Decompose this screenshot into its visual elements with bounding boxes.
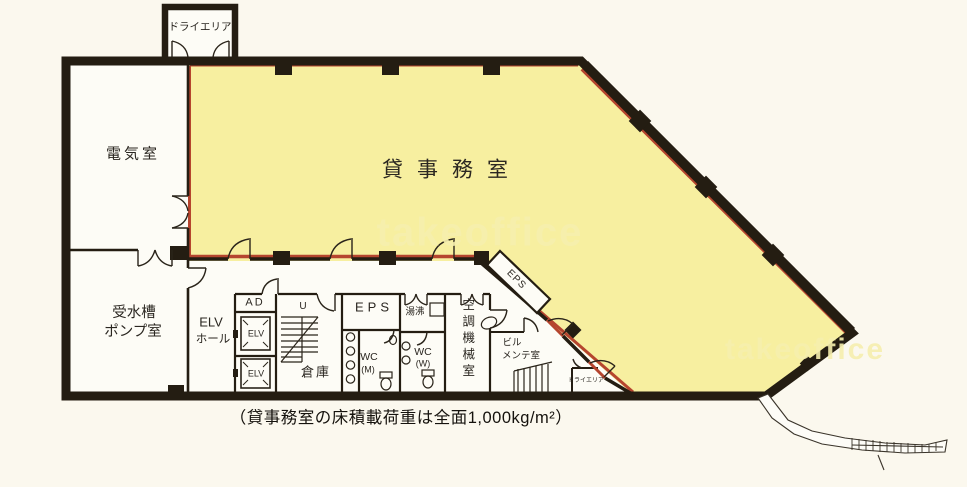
label-hvac-room: 空調機械室 [461,298,474,381]
label-tank-pump-line1: 受水槽 [112,306,156,321]
label-elevator-1: ELV [248,330,264,339]
label-dry-area-top: ドライエリア [169,22,232,33]
watermark-text: takeoffice [377,211,584,256]
label-elv-hall-line1: ELV [199,316,223,329]
label-elevator-2: ELV [248,370,264,379]
label-electrical-room: 電気室 [106,147,160,162]
dry-area-top-box [165,7,235,65]
watermark-text-2: takeoffice [725,333,885,367]
label-wc-w-line2: (W) [416,360,431,369]
label-maintenance-line2: メンテ室 [502,351,540,361]
floor-plan: takeoffice takeoffice ドライエリア 電気室 貸事務室 受水… [0,0,967,487]
label-eps: EPS [355,301,393,314]
label-elv-hall-line2: ホール [196,334,231,346]
label-stair-up: U [299,302,306,312]
label-maintenance-line1: ビル [502,338,521,348]
label-wc-m-line1: WC [360,352,378,363]
label-wc-m-line2: (M) [361,366,375,375]
label-wc-w-line1: WC [414,347,432,358]
caption-floor-load: （貸事務室の床積載荷重は全面1,000kg/m²） [230,410,573,427]
label-hot-water: 湯沸 [405,307,424,317]
label-ad-duct: AD [245,298,264,309]
label-tank-pump-line2: ポンプ室 [104,325,162,340]
label-office: 貸事務室 [382,160,522,181]
label-dry-area-bottom: ドライエリア [568,378,604,384]
label-storage: 倉庫 [301,366,331,379]
exterior-ramp [758,394,947,470]
